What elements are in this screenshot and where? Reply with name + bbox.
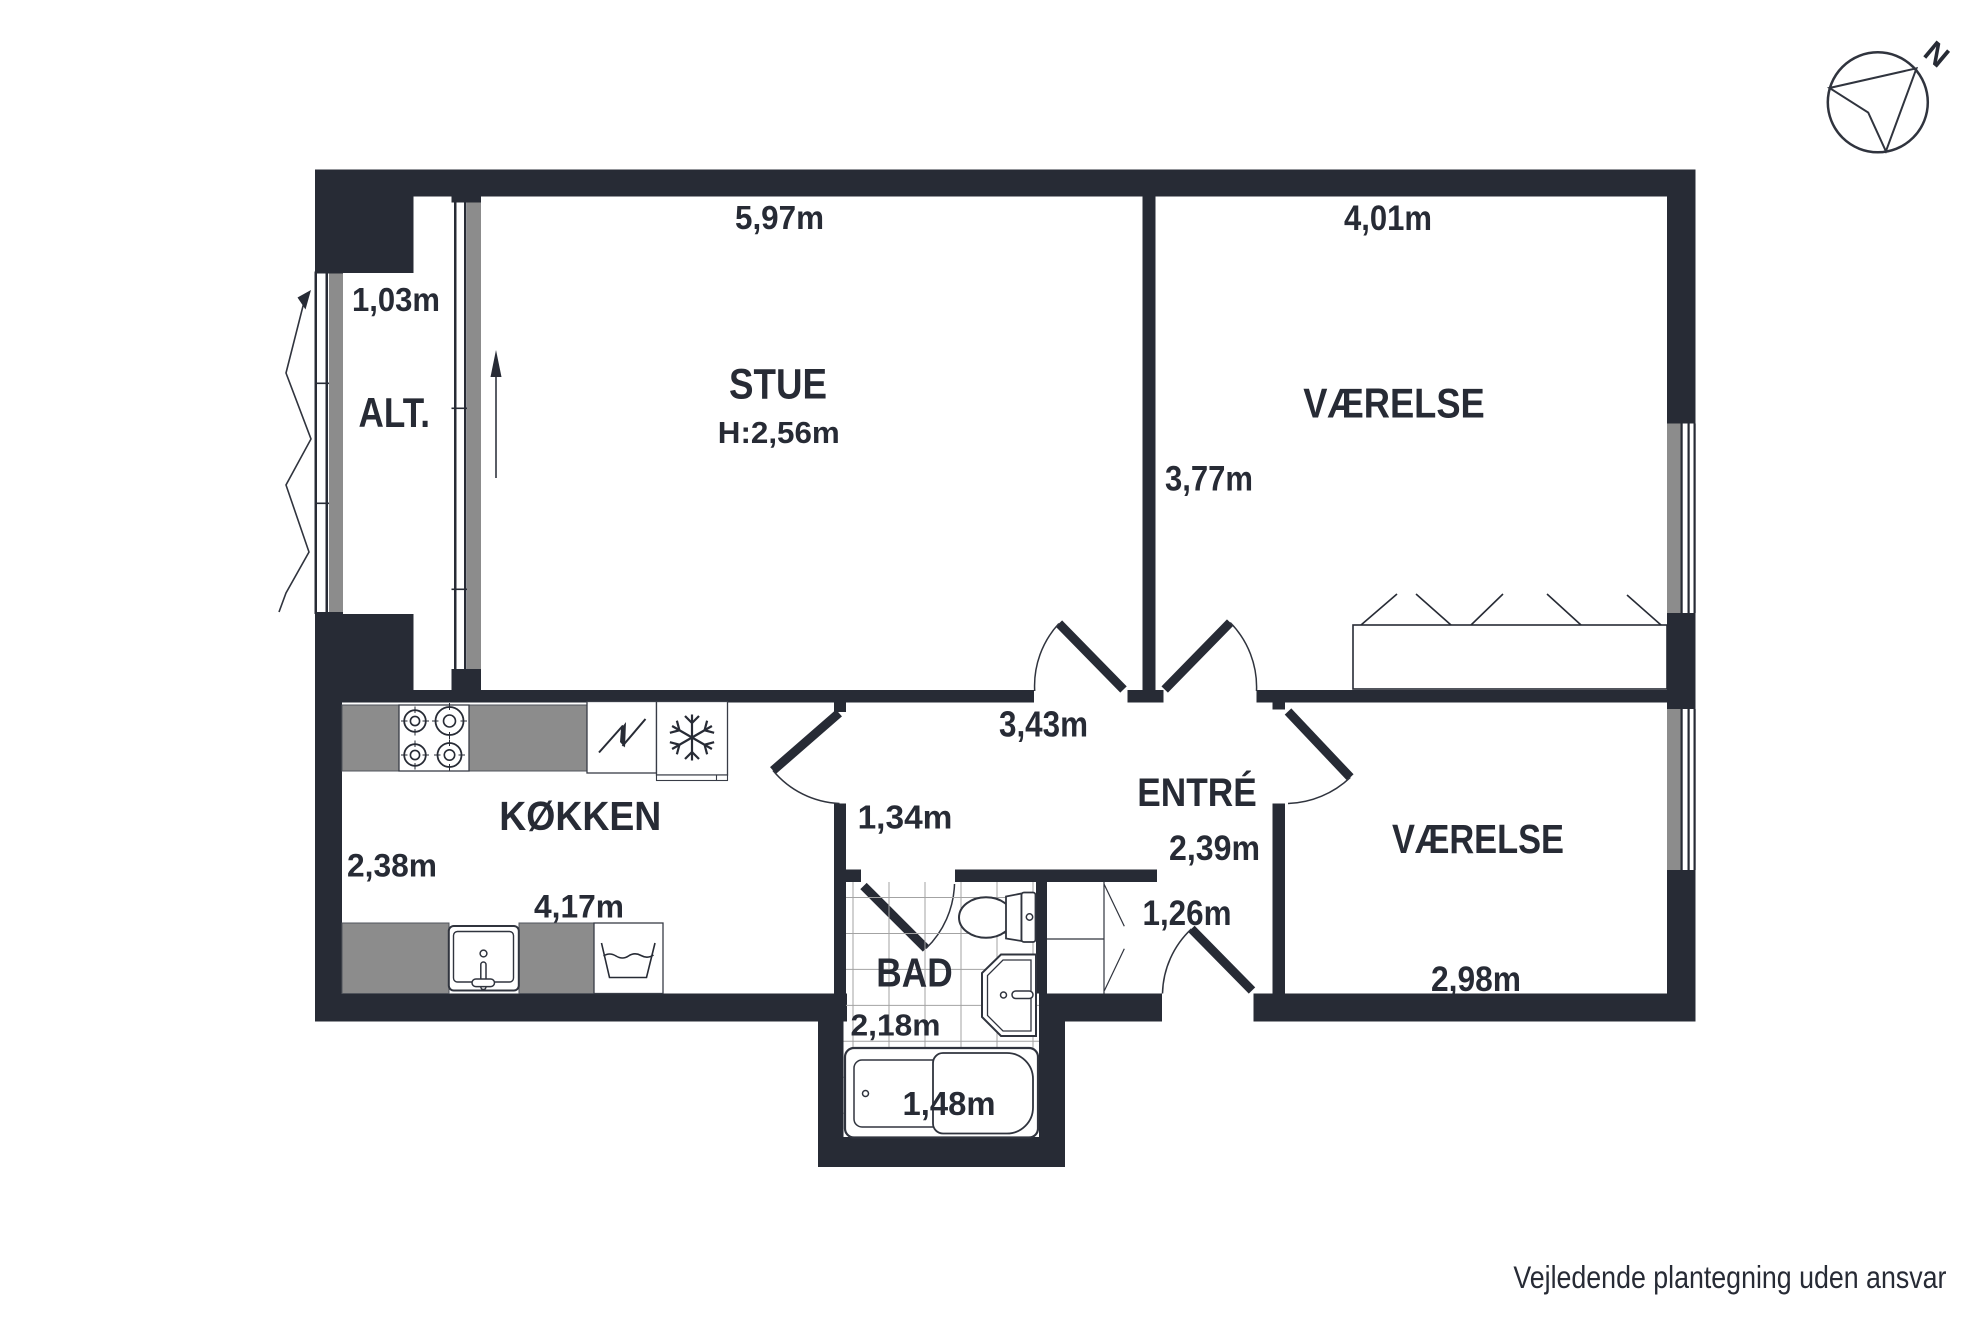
svg-text:4,01m: 4,01m	[1344, 199, 1432, 238]
svg-text:3,77m: 3,77m	[1165, 460, 1253, 499]
svg-text:5,97m: 5,97m	[735, 200, 824, 237]
svg-text:STUE: STUE	[729, 360, 827, 408]
svg-text:4,17m: 4,17m	[534, 889, 624, 925]
svg-text:2,18m: 2,18m	[851, 1007, 941, 1042]
svg-text:KØKKEN: KØKKEN	[499, 793, 661, 839]
svg-text:3,43m: 3,43m	[999, 704, 1088, 745]
svg-text:ENTRÉ: ENTRÉ	[1137, 770, 1257, 815]
svg-text:Vejledende plantegning uden an: Vejledende plantegning uden ansvar	[1513, 1259, 1946, 1295]
svg-text:1,26m: 1,26m	[1143, 894, 1232, 933]
svg-text:BAD: BAD	[876, 950, 952, 996]
svg-text:2,39m: 2,39m	[1169, 829, 1260, 868]
svg-text:2,38m: 2,38m	[347, 848, 437, 884]
svg-text:VÆRELSE: VÆRELSE	[1392, 816, 1564, 862]
svg-text:N: N	[1917, 35, 1955, 74]
svg-text:ALT.: ALT.	[359, 389, 431, 436]
svg-text:VÆRELSE: VÆRELSE	[1303, 379, 1485, 426]
svg-text:2,98m: 2,98m	[1431, 960, 1521, 999]
svg-text:H:2,56m: H:2,56m	[718, 416, 840, 450]
svg-text:1,48m: 1,48m	[903, 1085, 996, 1122]
svg-text:1,03m: 1,03m	[352, 281, 440, 318]
svg-text:1,34m: 1,34m	[858, 798, 953, 835]
